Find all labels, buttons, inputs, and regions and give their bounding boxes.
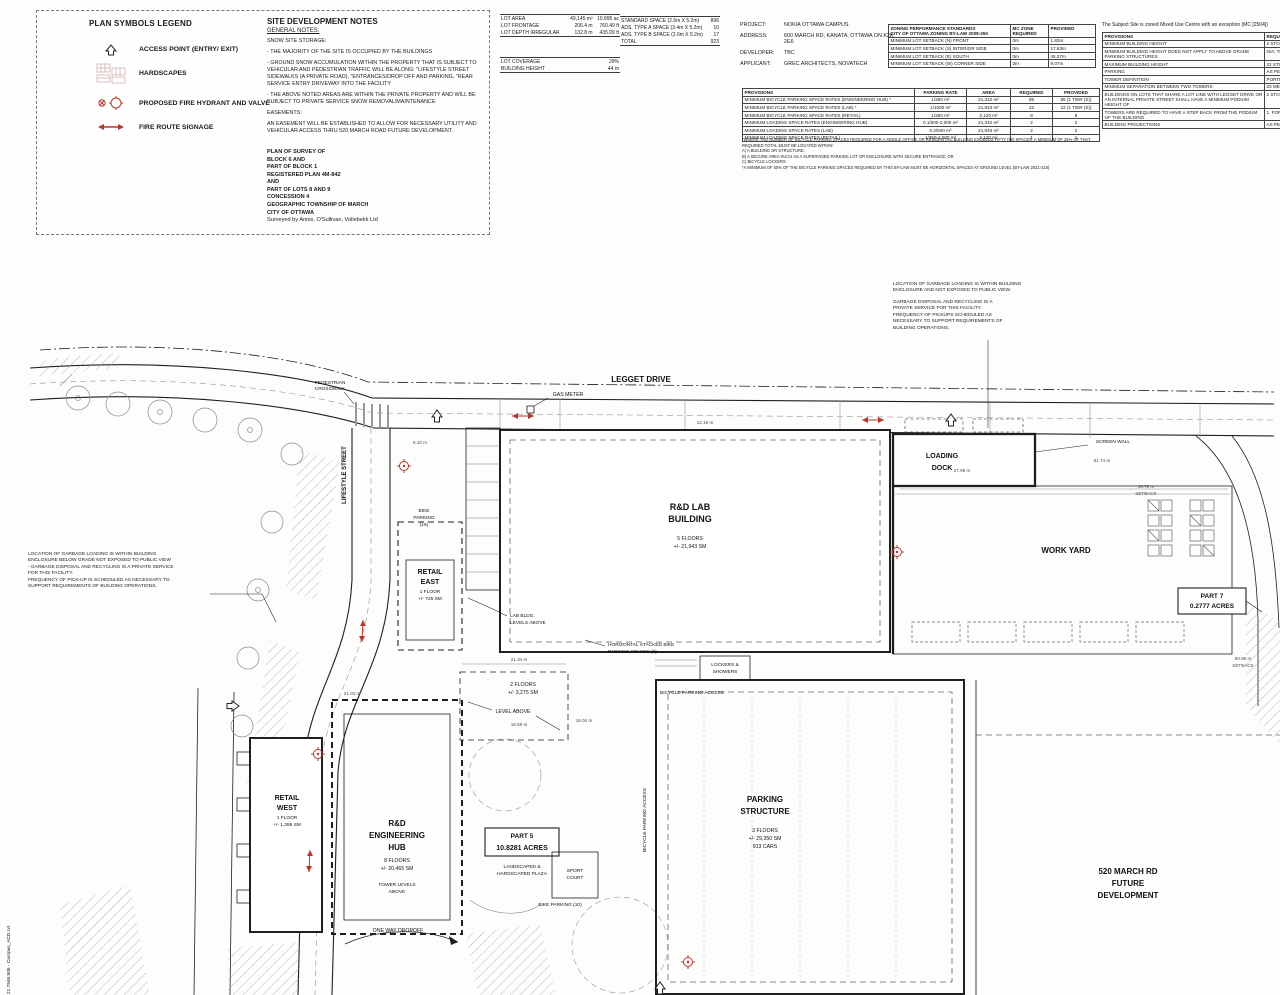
provision-area: 21,943 m² xyxy=(967,104,1011,112)
table-row: LOT FRONTAGE 206.4 m 760.49 ft xyxy=(500,22,620,29)
table-row: MINIMUM BUILDING HEIGHT DOES NOT APPLY T… xyxy=(1103,48,1280,61)
space-count: 896 xyxy=(709,17,720,25)
site-plan-sheet: LEGGET DRIVE GAS METER LIFESTYLE STREET … xyxy=(0,0,1280,995)
future-development-parcel xyxy=(976,680,1280,995)
fire-hydrant-icon xyxy=(95,96,127,110)
retail-west-label-1: RETAIL xyxy=(275,795,300,802)
mc-required: AS PER BY-LAW xyxy=(1265,68,1280,76)
bicycle-loading-provisions-table: PROVISIONS PARKING RATE AREA REQUIRED PR… xyxy=(742,88,1100,142)
dim-label: 21.03 m xyxy=(344,691,361,696)
table-row: BUILDINGS ON LOTS THAT SHARE A LOT LINE … xyxy=(1103,91,1280,109)
retail-east-label-3: 1 FLOOR xyxy=(420,589,441,595)
provision-required: 85 xyxy=(1011,96,1053,104)
crosswalk-bars xyxy=(356,402,388,429)
level-above-label: LEVEL ABOVE xyxy=(496,709,532,715)
bike10-label: BIKE PARKING (10) xyxy=(538,902,582,908)
legget-drive-label: LEGGET DRIVE xyxy=(611,375,671,384)
plan-of-survey-block: PLAN OF SURVEY OF BLOCK 6 AND PART OF BL… xyxy=(267,149,485,224)
project-field-label: PROJECT: xyxy=(740,22,784,28)
fire-route-arrow-icon xyxy=(95,122,127,132)
rd-engineering-hub xyxy=(332,700,462,934)
provision-name: MINIMUM LOADING SPACE RATES (LAB) xyxy=(743,126,915,134)
future-dev-label-1: 520 MARCH RD xyxy=(1098,867,1157,876)
provision-provided: 22 (1 TIER (S)) xyxy=(1053,104,1100,112)
provision-name: MINIMUM LOADING SPACE RATES (ENGINEERING… xyxy=(743,119,915,127)
provision-area: 2,120 m² xyxy=(967,111,1011,119)
stat-label: LOT AREA xyxy=(500,15,567,23)
one-way-dropoff-label: ONE WAY DROPOFF xyxy=(373,928,424,934)
screen-wall-label: SCREEN WALL xyxy=(1096,439,1131,445)
legend-item-fire-hydrant: PROPOSED FIRE HYDRANT AND VALVE xyxy=(95,93,270,113)
zoning-required: 3m xyxy=(1011,60,1049,68)
notes-title: SITE DEVELOPMENT NOTES xyxy=(267,17,485,26)
table-row: TOTAL 923 xyxy=(620,38,720,46)
part7-label-1: PART 7 xyxy=(1201,593,1224,600)
notes-paragraph: SNOW SITE STORAGE: xyxy=(267,38,485,45)
table-row: TOWERS ARE REQUIRED TO HAVE A STEP BACK … xyxy=(1103,108,1280,121)
mc-provision: MINIMUM BUILDING HEIGHT xyxy=(1103,40,1265,48)
table-row: LOT AREA 49,145 m² 10.895 ac xyxy=(500,15,620,23)
provision-area: 21,342 m² xyxy=(967,96,1011,104)
hub-label-4: 8 FLOORS xyxy=(384,858,410,864)
plaza-label-1: LANDSCAPED & xyxy=(503,864,541,870)
provision-rate: 1/250 m² xyxy=(915,96,967,104)
provision-area: 21,342 m² xyxy=(967,119,1011,127)
rd-lab-label-4: +/- 21,943 SM xyxy=(674,544,707,550)
table-row: MINIMUM LOT SETBACK (S) INTERIOR SIDE 0m… xyxy=(889,45,1096,53)
stat-metric: 49,145 m² xyxy=(567,15,594,23)
space-type: ADS. TYPE B SPACE (2.6m X 5.2m) xyxy=(620,31,709,38)
mc-required: 23 METRES xyxy=(1265,83,1280,91)
legend-item-fire-route: FIRE ROUTE SIGNAGE xyxy=(95,117,213,137)
zoning-provided: 17.63m xyxy=(1049,45,1096,53)
provision-rate: 1/1000 m² xyxy=(915,104,967,112)
provision-rate: 0.1/500-2,000 m² xyxy=(915,119,967,127)
stacked-bikes-label-1: HORIZONTAL STACKED BIKE xyxy=(608,642,674,648)
lockers-label-2: SHOWERS xyxy=(713,669,738,675)
table-header-row: ZONING PERFORMANCE STANDARDSCITY OF OTTA… xyxy=(889,25,1096,38)
dim-label: 12.19 m xyxy=(697,420,714,425)
project-info-block: PROJECT: NOKIA OTTAWA CAMPUS ADDRESS: 60… xyxy=(740,22,900,72)
table-row: LOT DEPTH IRREGULAR 132.8 m 435.09 ft xyxy=(500,29,620,37)
rd-lab-label-3: 5 FLOORS xyxy=(677,536,703,542)
space-count: 10 xyxy=(709,24,720,31)
dim-label: 27.98 m xyxy=(954,468,971,473)
mc-zone-intro: The Subject Site is zoned Mixed Use Cent… xyxy=(1102,22,1280,28)
legend-item-label: ACCESS POINT (ENTRY/ EXIT) xyxy=(139,46,238,53)
tower-levels-label-1: TOWER LEVELS xyxy=(378,882,415,888)
mc-provision: TOWERS ARE REQUIRED TO HAVE A STEP BACK … xyxy=(1103,108,1265,121)
provision-rate: 1/250 m² xyxy=(915,111,967,119)
table-row: MINIMUM LOT SETBACK (E) SOUTH 0m 45.37m xyxy=(889,52,1096,60)
plaza-label-2: HARDSCAPED PLAZA xyxy=(497,871,548,877)
part5-label-2: 10.8281 ACRES xyxy=(496,845,548,852)
parking-space-counts-table: STANDARD SPACE (2.6m X 5.2m) 896 ADS. TY… xyxy=(620,16,720,46)
lab-levels-label-2: LEVELS ABOVE xyxy=(510,620,546,626)
survey-line: BLOCK 6 AND xyxy=(267,157,485,165)
notes-paragraph: EASEMENTS: xyxy=(267,110,485,117)
retail-east-label-2: EAST xyxy=(421,579,440,586)
zoning-provision: MINIMUM LOT SETBACK (E) SOUTH xyxy=(889,52,1011,60)
table-row: PARKING AS PER BY-LAW xyxy=(1103,68,1280,76)
lockers-label-1: LOCKERS & xyxy=(711,662,739,668)
required-header: MC ZONE REQUIRED xyxy=(1011,25,1049,38)
stat-imperial: 10.895 ac xyxy=(594,15,620,23)
zoning-provided: 45.37m xyxy=(1049,52,1096,60)
stacked-bikes-label-2: PARKING SPACES (8) xyxy=(608,649,657,655)
mc-provision: BUILDINGS ON LOTS THAT SHARE A LOT LINE … xyxy=(1103,91,1265,109)
sport-court-label-2: COURT xyxy=(567,875,584,881)
required-header: REQUIRED xyxy=(1265,33,1280,41)
table-row: MINIMUM BICYCLE PARKING SPACE RATES (ENG… xyxy=(743,96,1100,104)
stat-label: LOT COVERAGE xyxy=(500,58,593,66)
table-header-row: PROVISIONS PARKING RATE AREA REQUIRED PR… xyxy=(743,89,1100,97)
site-development-notes: SITE DEVELOPMENT NOTES GENERAL NOTES: SN… xyxy=(267,17,485,225)
provision-provided: 2 xyxy=(1053,119,1100,127)
retail-east-building xyxy=(398,522,462,650)
provided-header: PROVIDED xyxy=(1049,25,1096,38)
project-field-label: APPLICANT: xyxy=(740,61,784,67)
dim-label: 18.59 m xyxy=(511,722,528,727)
crosswalk-label-2: CROSSWALK xyxy=(315,386,346,392)
provision-required: 8 xyxy=(1011,111,1053,119)
notes-paragraph: AN EASEMENT WILL BE ESTABLISHED TO ALLOW… xyxy=(267,121,485,135)
provision-name: MINIMUM BICYCLE PARKING SPACE RATES (LAB… xyxy=(743,104,915,112)
table-row: MINIMUM BICYCLE PARKING SPACE RATES (LAB… xyxy=(743,104,1100,112)
survey-line: PART OF BLOCK 1 xyxy=(267,164,485,172)
survey-line: AND xyxy=(267,179,485,187)
plan-symbols-legend-box: PLAN SYMBOLS LEGEND ACCESS POINT (ENTRY/… xyxy=(36,10,490,235)
part7-label-2: 0.2777 ACRES xyxy=(1190,603,1235,610)
legend-item-access-point: ACCESS POINT (ENTRY/ EXIT) xyxy=(95,39,238,59)
survey-line: Surveyed by Annis, O'Sullivan, Vollebekk… xyxy=(267,217,485,225)
zoning-provision: MINIMUM LOT SETBACK (S) INTERIOR SIDE xyxy=(889,45,1011,53)
access-point-arrow-icon xyxy=(95,43,127,56)
retail-east-label-1: RETAIL xyxy=(418,569,443,576)
hub-label-2: ENGINEERING xyxy=(369,831,425,840)
project-info-row: DEVELOPER: TBC xyxy=(740,50,900,56)
table-row: ADS. TYPE B SPACE (2.6m X 5.2m) 17 xyxy=(620,31,720,38)
future-dev-label-2: FUTURE xyxy=(1112,879,1145,888)
project-info-row: PROJECT: NOKIA OTTAWA CAMPUS xyxy=(740,22,900,28)
notes-paragraph: - THE ABOVE NOTED AREAS ARE WITHIN THE P… xyxy=(267,92,485,106)
survey-line: PART OF LOTS 8 AND 9 xyxy=(267,187,485,195)
coverage-table: LOT COVERAGE 29% BUILDING HEIGHT 44 m xyxy=(500,57,620,73)
table-row: MINIMUM LOT SETBACK (N) FRONT 0m 1.83m xyxy=(889,37,1096,45)
legend-item-label: HARDSCAPES xyxy=(139,70,187,77)
survey-line: GEOGRAPHIC TOWNSHIP OF MARCH xyxy=(267,202,485,210)
dim-label: SETBACK xyxy=(1135,491,1157,496)
rd-lab-label-2: BUILDING xyxy=(668,514,712,524)
zoning-required: 0m xyxy=(1011,52,1049,60)
mc-provision: MINIMUM SEPARATION BETWEEN TWO TOWERS xyxy=(1103,83,1265,91)
bike16-label-3: (16) xyxy=(420,522,429,528)
provision-name: MINIMUM BICYCLE PARKING SPACE RATES (ENG… xyxy=(743,96,915,104)
provisions-header: PROVISIONS xyxy=(1103,33,1265,41)
stat-imperial: 760.49 ft xyxy=(594,22,620,29)
space-type: ADS. TYPE A SPACE (3.4m X 5.2m) xyxy=(620,24,709,31)
mc-provision: MINIMUM BUILDING HEIGHT DOES NOT APPLY T… xyxy=(1103,48,1265,61)
garbage-note-right: LOCATION OF GARBAGE LOADING IS WITHIN BU… xyxy=(893,282,1053,332)
provision-required: 22 xyxy=(1011,104,1053,112)
provision-provided: 2 xyxy=(1053,126,1100,134)
mc-required: AS PER SECTION xyxy=(1265,121,1280,129)
legend-title: PLAN SYMBOLS LEGEND xyxy=(89,19,192,28)
parking-structure-label-4: +/- 29,350 SM xyxy=(749,836,782,842)
loading-dock xyxy=(893,419,1035,654)
future-dev-label-3: DEVELOPMENT xyxy=(1098,891,1159,900)
table-header-row: PROVISIONS REQUIRED xyxy=(1103,33,1280,41)
mc-provision: TOWER DEFINITION xyxy=(1103,75,1265,83)
zoning-standards-table: ZONING PERFORMANCE STANDARDSCITY OF OTTA… xyxy=(888,24,1096,68)
work-yard-bays xyxy=(912,622,1184,642)
stat-label: LOT DEPTH IRREGULAR xyxy=(500,29,567,37)
retail-west-label-3: 1 FLOOR xyxy=(277,815,298,821)
footnote-line: *A MINIMUM OF 50% OF THE BICYCLE PARKING… xyxy=(742,165,1104,171)
footnote-line: *WHERE THE NUMBER OF BICYCLE PARKING SPA… xyxy=(742,137,1104,148)
table-row: TOWER DEFINITION PORTION OF BUILDING xyxy=(1103,75,1280,83)
dim-label: 60.96 m xyxy=(1235,656,1252,661)
space-type: STANDARD SPACE (2.6m X 5.2m) xyxy=(620,17,709,25)
project-field-value: NOKIA OTTAWA CAMPUS xyxy=(784,22,900,28)
area-header: AREA xyxy=(967,89,1011,97)
mc-provision: PARKING xyxy=(1103,68,1265,76)
provision-required: 2 xyxy=(1011,126,1053,134)
dim-label: 16.04 m xyxy=(576,718,593,723)
legend-item-hardscapes: HARDSCAPES xyxy=(95,63,187,83)
dim-label: 6.10 m xyxy=(413,440,427,445)
notes-paragraph: - THE MAJORITY OF THE SITE IS OCCUPIED B… xyxy=(267,49,485,56)
gas-meter-symbol xyxy=(527,398,548,413)
project-field-label: DEVELOPER: xyxy=(740,50,784,56)
table-row: ADS. TYPE A SPACE (3.4m X 5.2m) 10 xyxy=(620,24,720,31)
work-yard xyxy=(893,486,1232,654)
provision-required: 2 xyxy=(1011,119,1053,127)
crosswalk-label-1: PEDESTRIAN xyxy=(315,380,346,386)
parking-structure xyxy=(656,680,964,994)
mc-required: 22 STOREYS xyxy=(1265,60,1280,68)
lockers-showers xyxy=(655,656,750,680)
stat-label: LOT FRONTAGE xyxy=(500,22,567,29)
loading-dock-label-1: LOADING xyxy=(926,453,959,460)
provisions-footnotes: *WHERE THE NUMBER OF BICYCLE PARKING SPA… xyxy=(742,137,1104,170)
retail-east-label-4: +/- 725 SM xyxy=(418,596,442,602)
table-row: MINIMUM LOT SETBACK (W) CORNER SIDE 3m 9… xyxy=(889,60,1096,68)
stat-metric: 206.4 m xyxy=(567,22,594,29)
survey-line: REGISTERED PLAN 4M-842 xyxy=(267,172,485,180)
lot-statistics-table: LOT AREA 49,145 m² 10.895 ac LOT FRONTAG… xyxy=(500,14,620,37)
part5-label-1: PART 5 xyxy=(511,833,534,840)
project-field-value: TBC xyxy=(784,50,900,56)
survey-line: PLAN OF SURVEY OF xyxy=(267,149,485,157)
two-floors-label-2: +/- 3,275 SM xyxy=(508,690,538,696)
project-field-value: GREC ARCHITECTS, NOVATECH xyxy=(784,61,900,67)
dim-label: 45.72 m xyxy=(1138,484,1155,489)
project-info-row: ADDRESS: 600 MARCH RD, KANATA, OTTAWA ON… xyxy=(740,33,900,45)
space-count: 923 xyxy=(709,38,720,46)
mc-zone-exception-panel: The Subject Site is zoned Mixed Use Cent… xyxy=(1102,18,1280,168)
zoning-header: ZONING PERFORMANCE STANDARDSCITY OF OTTA… xyxy=(889,25,1011,38)
stat-value: 44 m xyxy=(593,65,620,73)
dim-label: SETBACK xyxy=(1232,663,1254,668)
table-row: BUILDING PROJECTIONS AS PER SECTION xyxy=(1103,121,1280,129)
notes-paragraphs: SNOW SITE STORAGE: - THE MAJORITY OF THE… xyxy=(267,38,485,135)
zoning-provision: MINIMUM LOT SETBACK (N) FRONT xyxy=(889,37,1011,45)
gas-meter-label: GAS METER xyxy=(553,392,584,398)
mc-provision: BUILDING PROJECTIONS xyxy=(1103,121,1265,129)
survey-line: CONCESSION 4 xyxy=(267,194,485,202)
required-header: REQUIRED xyxy=(1011,89,1053,97)
stat-metric: 132.8 m xyxy=(567,29,594,37)
table-row: BUILDING HEIGHT 44 m xyxy=(500,65,620,73)
table-row: LOT COVERAGE 29% xyxy=(500,58,620,66)
table-row: MINIMUM LOADING SPACE RATES (LAB) 0.2/50… xyxy=(743,126,1100,134)
mc-required: 2 STOREYS xyxy=(1265,91,1280,109)
note-line: BUILDING OPERATIONS. xyxy=(893,326,1053,332)
stat-label: BUILDING HEIGHT xyxy=(500,65,593,73)
zoning-provided: 1.83m xyxy=(1049,37,1096,45)
notes-subtitle: GENERAL NOTES: xyxy=(267,28,485,34)
project-field-label: ADDRESS: xyxy=(740,33,784,45)
retail-west-label-4: +/- 1,395 SM xyxy=(273,822,301,828)
table-row: MINIMUM BUILDING HEIGHT 2 STOREYS xyxy=(1103,40,1280,48)
parking-structure-label-2: STRUCTURE xyxy=(740,807,790,816)
bike16-label-1: BIKE xyxy=(419,508,430,514)
dim-label: 61.74 m xyxy=(1094,458,1111,463)
mc-required: 1. FOR A HIGH-RISE 2. IN ALL xyxy=(1265,108,1280,121)
garbage-note-left: LOCATION OF GARBAGE LOADING IS WITHIN BU… xyxy=(28,552,223,591)
parking-structure-label-5: 913 CARS xyxy=(753,844,778,850)
mc-required: 2 STOREYS xyxy=(1265,40,1280,48)
table-row: MAXIMUM BUILDING HEIGHT 22 STOREYS xyxy=(1103,60,1280,68)
loading-dock-label-2: DOCK xyxy=(932,465,953,472)
hub-label-1: R&D xyxy=(388,819,406,828)
sport-court-label-1: SPORT xyxy=(567,868,584,874)
note-line: SUPPORT REQUIREMENTS OF BUILDING OPERATI… xyxy=(28,584,223,590)
provision-provided: 85 (1 TIER (S)) xyxy=(1053,96,1100,104)
lifestyle-street-label: LIFESTYLE STREET xyxy=(342,446,348,504)
file-tag-label: 21.7946.906 - Campus_ACD.rvt xyxy=(6,925,12,994)
retail-west-building xyxy=(237,738,322,932)
legend-item-label: PROPOSED FIRE HYDRANT AND VALVE xyxy=(139,100,270,107)
dim-label: 21.34 m xyxy=(511,657,528,662)
table-row: STANDARD SPACE (2.6m X 5.2m) 896 xyxy=(620,17,720,25)
work-yard-label: WORK YARD xyxy=(1041,546,1091,555)
lab-levels-label-1: LAB BLDG. xyxy=(510,613,535,619)
space-count: 17 xyxy=(709,31,720,38)
zoning-required: 0m xyxy=(1011,37,1049,45)
bicycle-access-label-h: BICYCLE PARKING ACCESS xyxy=(660,690,724,696)
hardscape-grid-icon xyxy=(95,62,127,84)
space-type: TOTAL xyxy=(620,38,709,46)
table-row: MINIMUM LOADING SPACE RATES (ENGINEERING… xyxy=(743,119,1100,127)
provision-rate: 0.2/500 m² xyxy=(915,126,967,134)
rd-lab-label-1: R&D LAB xyxy=(670,502,711,512)
tower-levels-label-2: ABOVE xyxy=(389,889,406,895)
survey-line: CITY OF OTTAWA xyxy=(267,210,485,218)
rate-header: PARKING RATE xyxy=(915,89,967,97)
bike16-label-2: PARKING xyxy=(413,515,435,521)
bicycle-access-label-v: BICYCLE PARKING ACCESS xyxy=(642,788,648,852)
zoning-provision: MINIMUM LOT SETBACK (W) CORNER SIDE xyxy=(889,60,1011,68)
table-row: MINIMUM SEPARATION BETWEEN TWO TOWERS 23… xyxy=(1103,83,1280,91)
notes-paragraph: - GROUND SNOW ACCUMULATION WITHIN THE PR… xyxy=(267,60,485,88)
mc-provision: MAXIMUM BUILDING HEIGHT xyxy=(1103,60,1265,68)
project-info-row: APPLICANT: GREC ARCHITECTS, NOVATECH xyxy=(740,61,900,67)
project-field-value: 600 MARCH RD, KANATA, OTTAWA ON K2K 2E6 xyxy=(784,33,900,45)
hub-label-5: +/- 20,465 SM xyxy=(381,866,414,872)
provisions-header: PROVISIONS xyxy=(743,89,915,97)
stat-imperial: 435.09 ft xyxy=(594,29,620,37)
stat-value: 29% xyxy=(593,58,620,66)
retail-west-label-2: WEST xyxy=(277,805,298,812)
provision-name: MINIMUM BICYCLE PARKING SPACE RATES (RET… xyxy=(743,111,915,119)
table-row: MINIMUM BICYCLE PARKING SPACE RATES (RET… xyxy=(743,111,1100,119)
mc-required: PORTION OF BUILDING xyxy=(1265,75,1280,83)
provision-provided: 8 xyxy=(1053,111,1100,119)
parking-structure-label-1: PARKING xyxy=(747,795,783,804)
provision-area: 21,943 m² xyxy=(967,126,1011,134)
mechanical-equipment-squares xyxy=(1148,500,1214,556)
hub-label-3: HUB xyxy=(388,843,406,852)
two-floors-label-1: 2 FLOORS xyxy=(510,682,536,688)
mc-required: N/A, THE PARKING xyxy=(1265,48,1280,61)
legend-item-label: FIRE ROUTE SIGNAGE xyxy=(139,124,213,131)
zoning-provided: 9.07m xyxy=(1049,60,1096,68)
parking-structure-label-3: 3 FLOORS xyxy=(752,828,778,834)
provided-header: PROVIDED xyxy=(1053,89,1100,97)
zoning-required: 0m xyxy=(1011,45,1049,53)
